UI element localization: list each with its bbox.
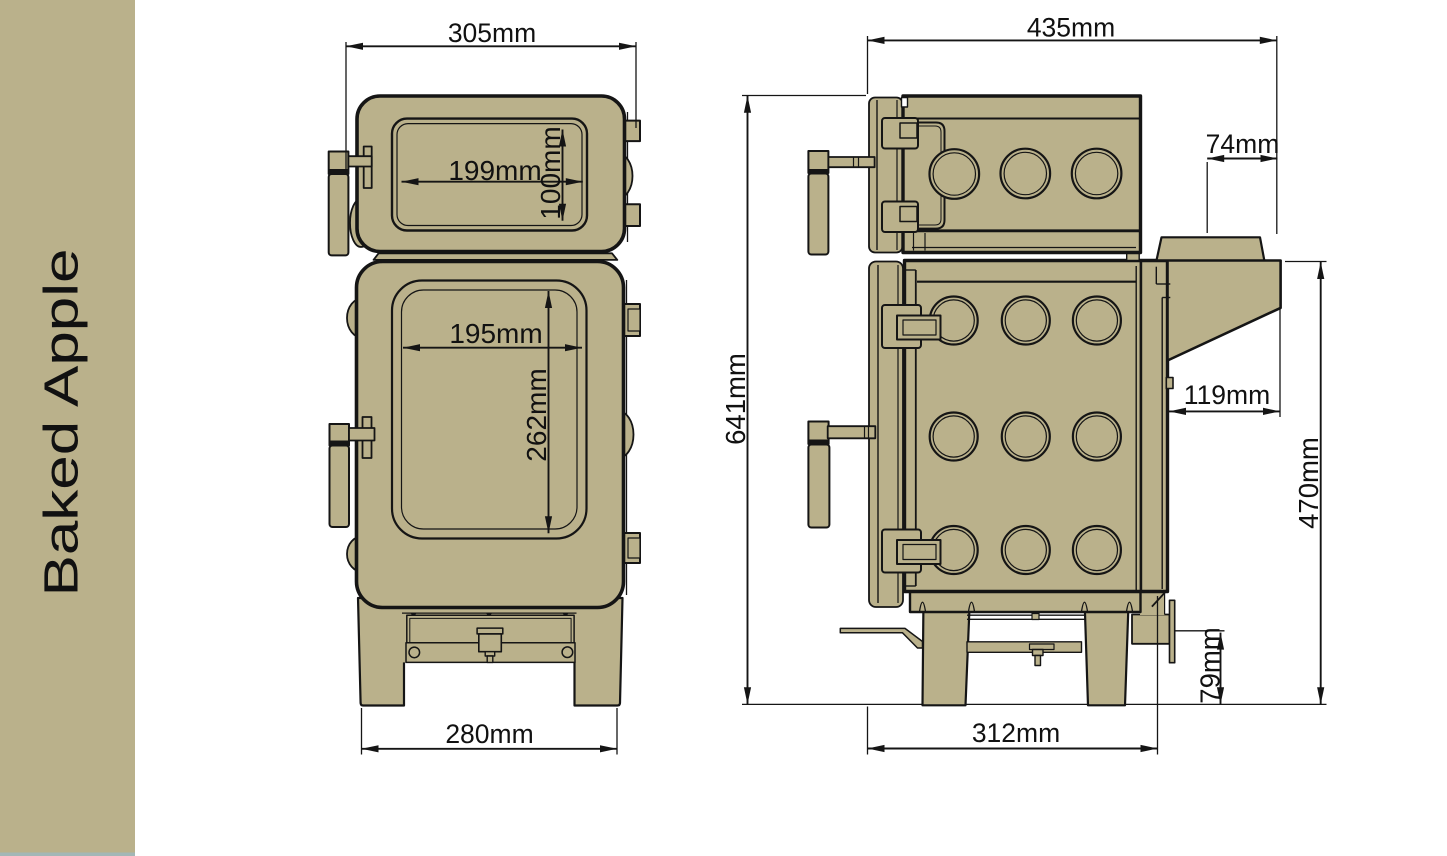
svg-text:74mm: 74mm [1206, 129, 1280, 159]
svg-text:641mm: 641mm [720, 353, 751, 445]
svg-text:199mm: 199mm [448, 155, 541, 186]
svg-text:312mm: 312mm [972, 718, 1060, 748]
svg-text:435mm: 435mm [1027, 13, 1115, 43]
svg-text:305mm: 305mm [448, 18, 536, 48]
svg-text:Baked Apple: Baked Apple [35, 248, 89, 596]
svg-text:262mm: 262mm [521, 368, 552, 461]
svg-text:119mm: 119mm [1184, 380, 1270, 410]
svg-text:280mm: 280mm [445, 719, 533, 749]
svg-text:100mm: 100mm [535, 126, 566, 219]
svg-text:195mm: 195mm [449, 318, 542, 349]
svg-text:79mm: 79mm [1195, 627, 1226, 703]
svg-text:470mm: 470mm [1293, 437, 1324, 529]
